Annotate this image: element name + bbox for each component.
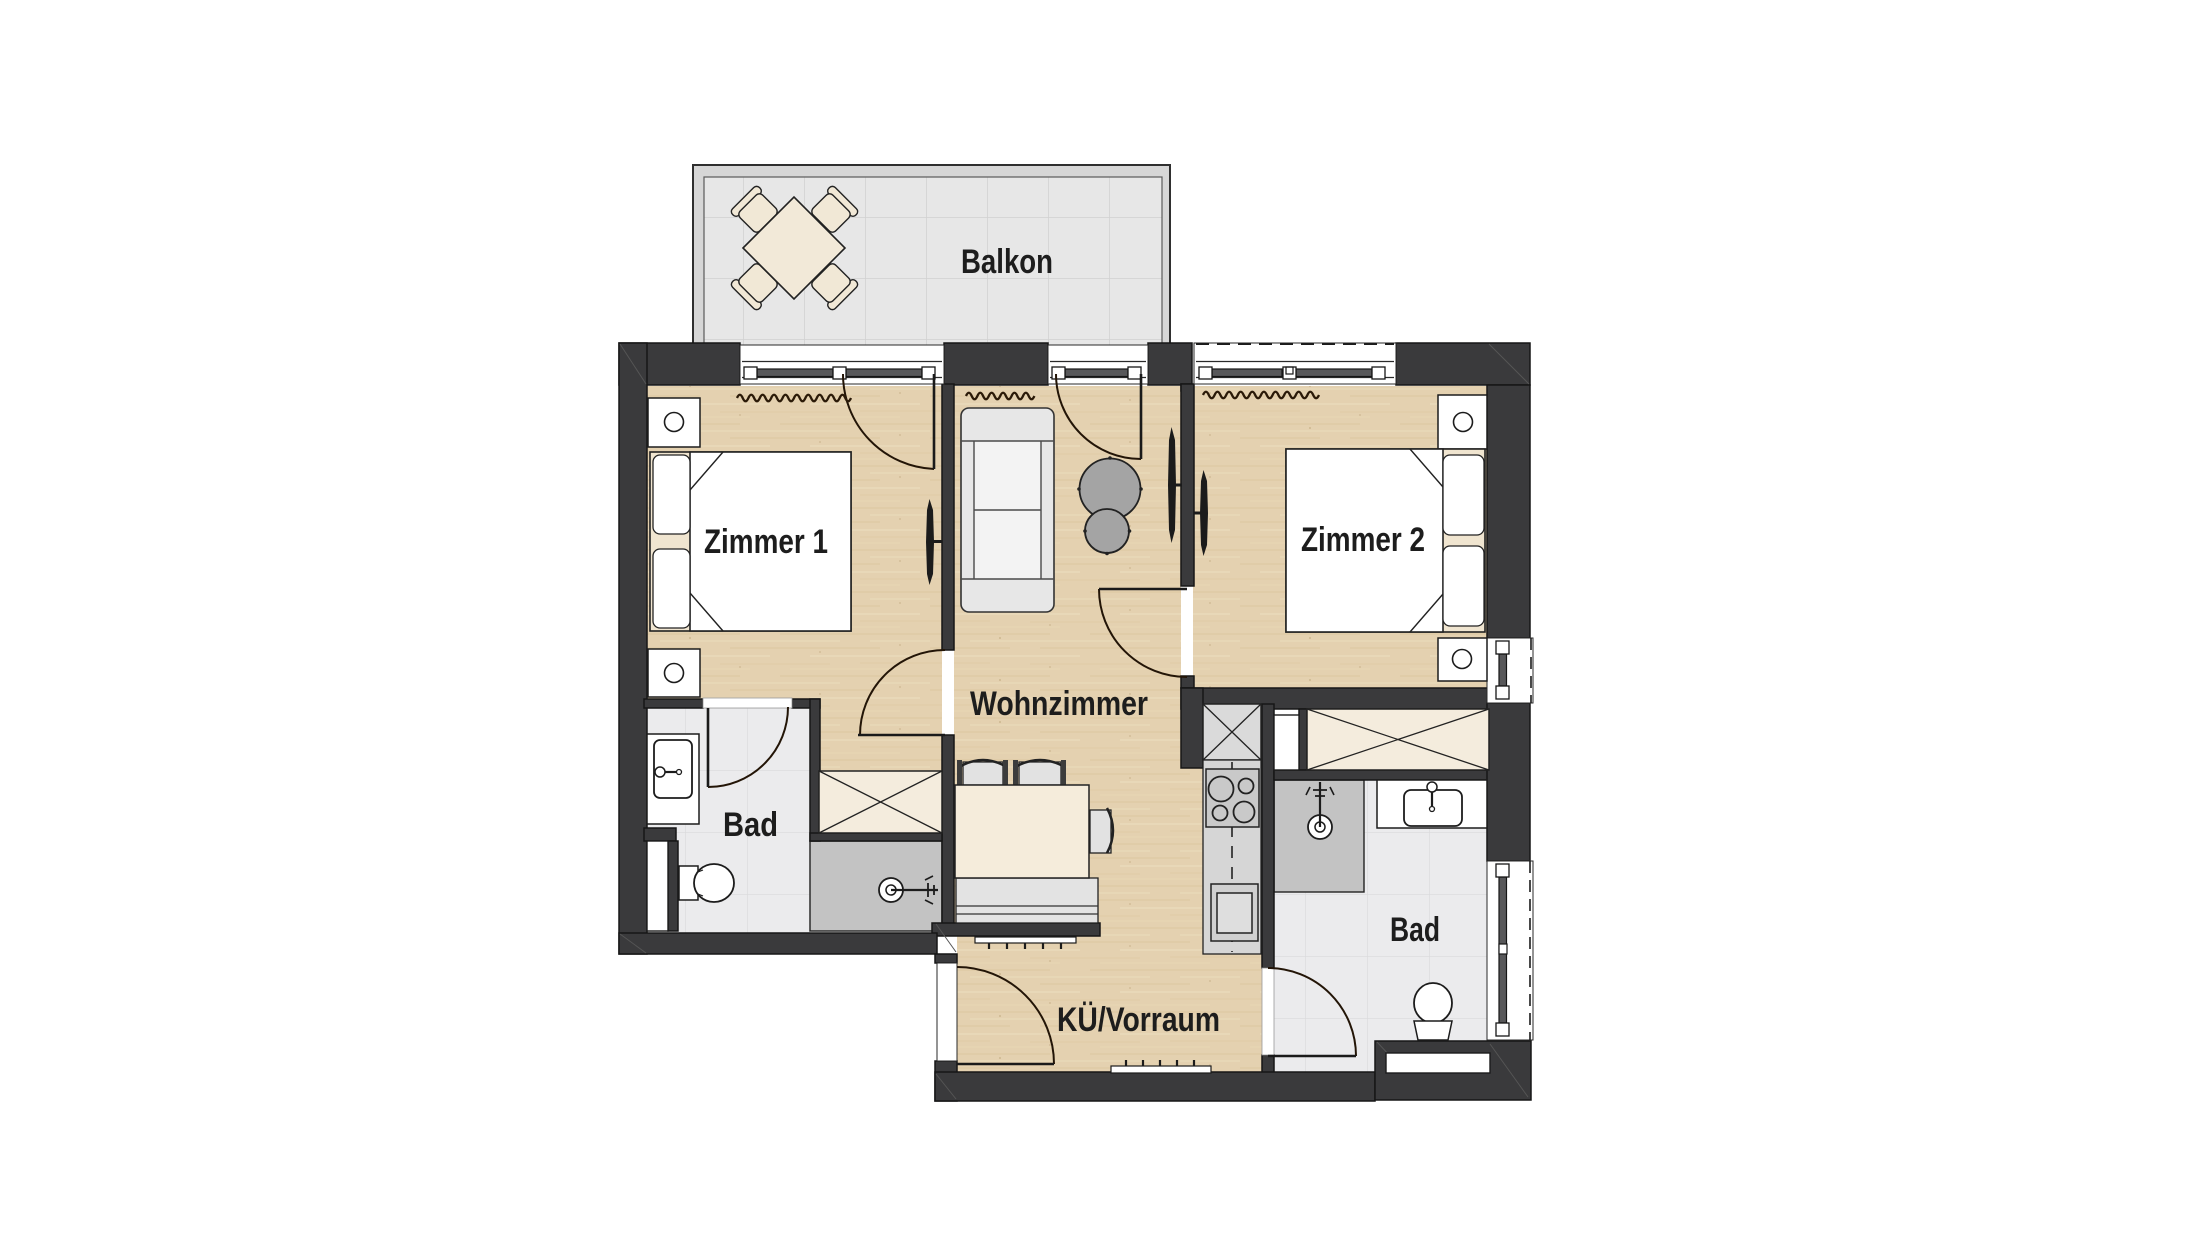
svg-text:Wohnzimmer: Wohnzimmer bbox=[970, 685, 1148, 723]
svg-text:KÜ/Vorraum: KÜ/Vorraum bbox=[1057, 1000, 1220, 1039]
svg-text:Balkon: Balkon bbox=[961, 243, 1053, 281]
svg-text:Zimmer 2: Zimmer 2 bbox=[1301, 521, 1425, 559]
svg-text:Bad: Bad bbox=[723, 806, 778, 844]
svg-text:Bad: Bad bbox=[1390, 911, 1440, 949]
svg-text:Zimmer 1: Zimmer 1 bbox=[704, 523, 828, 561]
